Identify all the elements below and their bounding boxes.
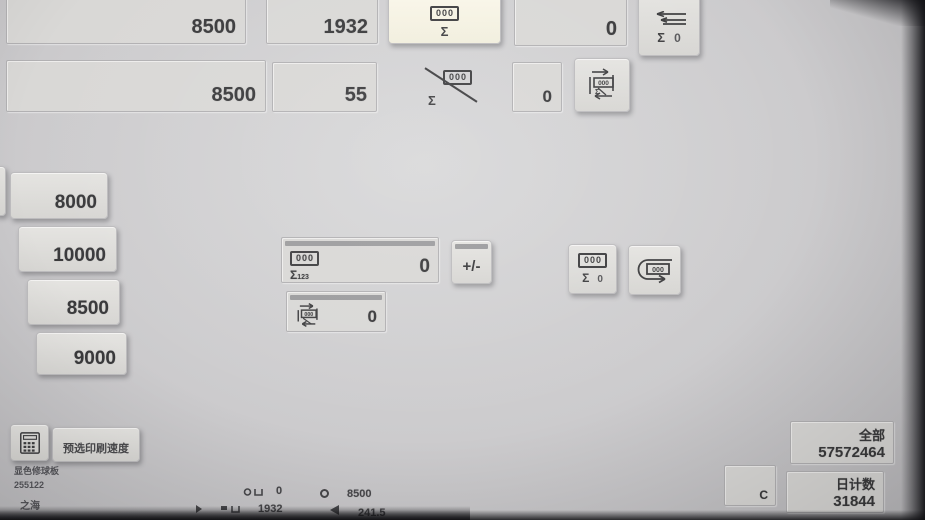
speed-setpoint-value-1: 8500 [192,16,237,39]
right-count-value: 0 [606,18,617,41]
plus-minus-button[interactable]: +/- [451,240,492,284]
small-count-value: 55 [345,84,367,107]
sigma-zero-label: Σ 0 [582,271,603,285]
bezel-right [901,0,925,520]
counter-sum-zero-button[interactable]: 000 Σ 0 [568,244,617,294]
preselect-print-speed-label: 预选印刷速度 [63,440,129,456]
preset-speed-label: 9000 [74,348,116,370]
svg-text:000: 000 [598,80,609,87]
counter-icon: 000 [578,253,607,268]
right-count-field[interactable]: 0 [514,0,627,46]
sigma-icon: Σ [428,93,436,108]
counter-icon: 000 [430,6,459,21]
counter-icon: 000 [290,251,319,266]
sum-counter-disabled-icon[interactable]: 000 Σ [424,62,472,112]
svg-text:000: 000 [652,267,664,274]
clear-button-label: C [759,488,768,502]
preset-speed-label: 8000 [55,192,97,214]
sheet-counter-icon [243,486,265,498]
preset-speed-button-3[interactable]: 8500 [27,279,120,325]
job-info-line-3: 之海 [20,497,40,512]
small-right-count-value: 0 [543,87,552,107]
daily-counter-field[interactable]: 日计数 31844 [786,471,884,513]
preselect-print-speed-button[interactable]: 预选印刷速度 [52,427,140,462]
counter-sigma123-icon: 000 Σ123 [290,248,319,284]
speed-setpoint-field-1[interactable]: 8500 [6,0,246,44]
status-aux-value: 241.5 [358,507,386,519]
svg-text:000: 000 [304,312,313,318]
speed-setpoint-value-2: 8500 [212,84,257,107]
focus-strip [290,295,382,300]
small-count-field[interactable]: 55 [272,62,377,112]
cursor-arrow-icon [196,505,202,513]
job-counter-value: 0 [419,256,430,278]
impression-count-field[interactable]: 1932 [266,0,378,44]
press-console-screen: 8500 8500 1932 55 000 Σ 0 Σ 0 [0,0,925,520]
clear-button[interactable]: C [724,465,776,506]
sub-counter-value: 0 [368,307,377,327]
counter-uturn-icon: 000 [634,252,676,288]
daily-count-value: 31844 [833,493,875,510]
speed-dial-icon [320,489,329,498]
preset-speed-button-4[interactable]: 9000 [36,332,127,375]
sigma-icon: Σ [657,30,665,45]
counter-cycle-button[interactable]: 000 Σ [574,58,630,112]
total-value: 57572464 [818,444,885,461]
small-right-count-field[interactable]: 0 [512,62,562,112]
plus-minus-label: +/- [452,249,491,283]
preset-speed-button-edge[interactable] [0,166,6,216]
left-arrows-icon [649,11,689,27]
speaker-icon [330,505,339,515]
calculator-icon [18,431,42,455]
svg-text:Σ: Σ [595,89,599,96]
sigma-subscript: 123 [297,274,309,281]
sum-counter-button[interactable]: 000 Σ [388,0,501,44]
job-info-line-1: 显色修球板 [14,464,59,477]
preset-speed-label: 8500 [67,298,109,320]
daily-count-label: 日计数 [836,474,875,493]
sigma-zero-label: Σ 0 [657,30,681,45]
job-counter-field[interactable]: 000 Σ123 0 [281,237,439,283]
preset-speed-label: 10000 [53,245,106,267]
status-speed-value: 8500 [347,488,371,500]
transfer-sum-zero-button[interactable]: Σ 0 [638,0,700,56]
job-info-line-2: 255122 [14,480,44,490]
impression-count-value: 1932 [324,16,369,39]
status-total-count: 1932 [258,503,282,515]
counter-cycle-icon: 000 Σ [582,65,622,105]
total-label: 全部 [859,425,885,444]
focus-strip [285,241,435,246]
bezel-top-right [830,0,925,26]
calculator-button[interactable] [10,424,49,461]
sub-counter-field[interactable]: 000 0 [286,291,386,332]
counter-cycle-icon: 000 [293,302,323,328]
counter-return-button[interactable]: 000 [628,245,681,295]
sigma-zero-value: 0 [674,31,681,45]
total-counter-field[interactable]: 全部 57572464 [790,421,894,464]
preset-speed-button-1[interactable]: 8000 [10,172,108,219]
status-sheet-count: 0 [276,485,282,497]
preset-speed-button-2[interactable]: 10000 [18,226,117,272]
sigma-zero-value: 0 [597,274,603,285]
sigma-icon: Σ [582,271,589,285]
sigma-icon: Σ [441,24,449,39]
speed-setpoint-field-2[interactable]: 8500 [6,60,266,112]
stack-counter-icon [220,503,242,515]
